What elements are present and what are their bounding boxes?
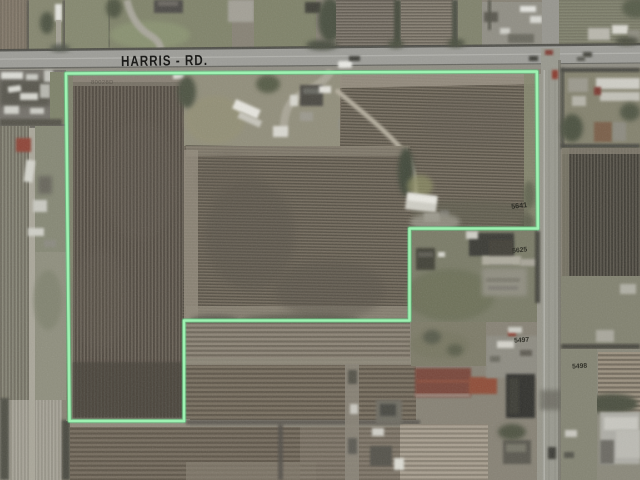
svg-text:5497: 5497 (514, 337, 530, 345)
svg-text:5641: 5641 (511, 200, 528, 211)
svg-text:5498: 5498 (572, 363, 588, 371)
svg-text:80028D: 80028D (91, 80, 114, 86)
svg-text:HARRIS - RD.: HARRIS - RD. (121, 53, 208, 70)
